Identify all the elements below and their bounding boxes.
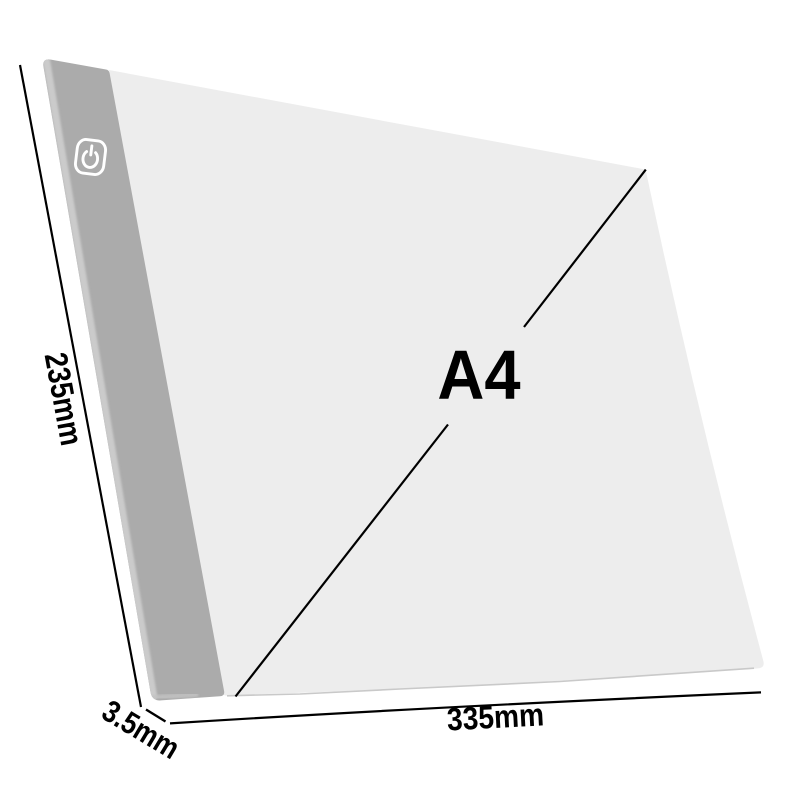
svg-text:A4: A4 (437, 337, 521, 415)
svg-text:335mm: 335mm (446, 698, 545, 738)
